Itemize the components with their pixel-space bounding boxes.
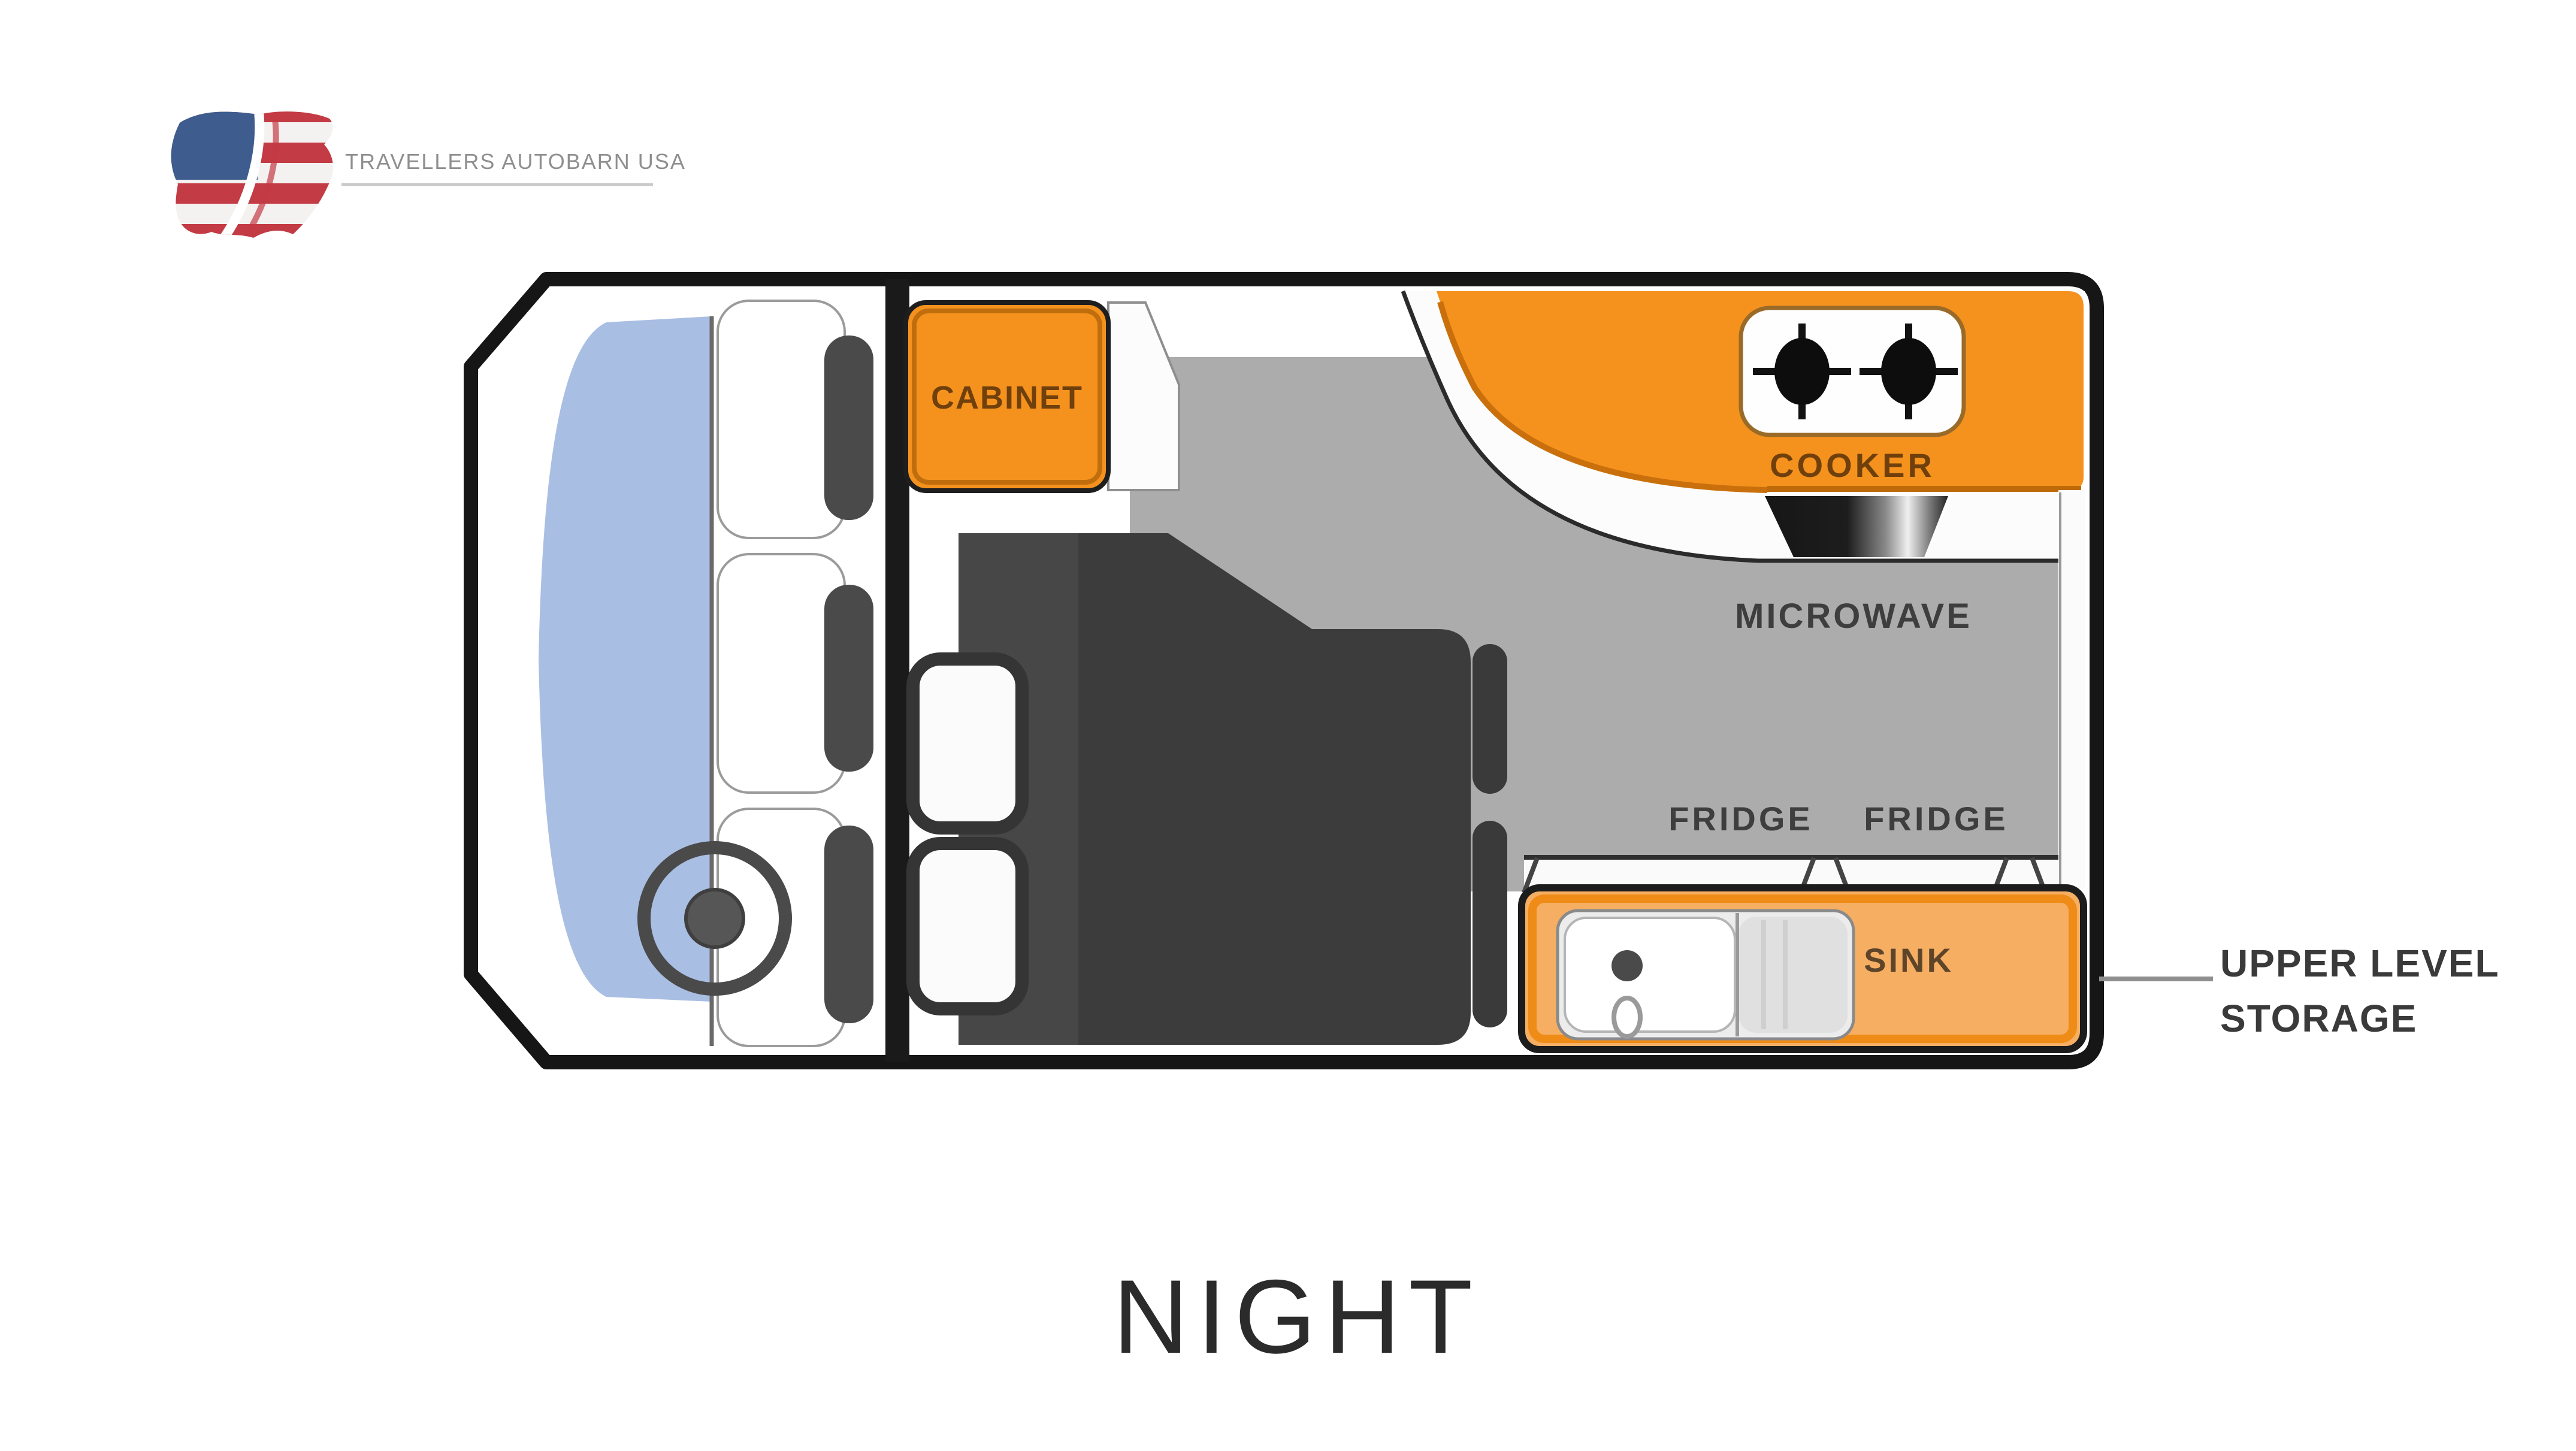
microwave-panel: [1765, 496, 1948, 557]
upper-level-storage-callout: UPPER LEVEL STORAGE: [2099, 942, 2500, 1040]
seat-headrest: [824, 826, 873, 1023]
cabinet-box: CABINET: [906, 303, 1179, 491]
microwave-label: MICROWAVE: [1735, 597, 1972, 636]
bed-backrest: [1473, 821, 1507, 1027]
callout-line2: STORAGE: [2220, 997, 2417, 1040]
cooker-label: COOKER: [1770, 446, 1935, 484]
fridge-label-left: FRIDGE: [1668, 800, 1813, 838]
pillow: [913, 844, 1022, 1009]
seat-headrest: [824, 585, 873, 772]
cooker-unit: COOKER: [1741, 308, 1964, 484]
bed-backrest: [1473, 644, 1507, 794]
seat-headrest: [824, 335, 873, 520]
cabinet-label: CABINET: [931, 380, 1083, 416]
brand-logo: TRAVELLERS AUTOBARN USA: [168, 102, 686, 244]
sink-unit: [1558, 911, 1854, 1039]
sink-counter: SINK: [1522, 888, 2084, 1050]
callout-line1: UPPER LEVEL: [2220, 942, 2500, 985]
brand-text: TRAVELLERS AUTOBARN USA: [345, 149, 686, 174]
sink-label: SINK: [1864, 941, 1954, 979]
us-flag-map-icon: [168, 102, 341, 244]
faucet: [1611, 950, 1643, 981]
floorplan-canvas: TRAVELLERS AUTOBARN USA: [0, 0, 2576, 1451]
right-wall-strip: [2058, 490, 2085, 888]
night-title: NIGHT: [1113, 1259, 1481, 1376]
drain: [1614, 998, 1640, 1036]
pillow: [913, 659, 1022, 828]
windshield: [539, 316, 712, 1002]
cab-seats: [718, 301, 873, 1046]
fridge-label-right: FRIDGE: [1864, 800, 2009, 838]
